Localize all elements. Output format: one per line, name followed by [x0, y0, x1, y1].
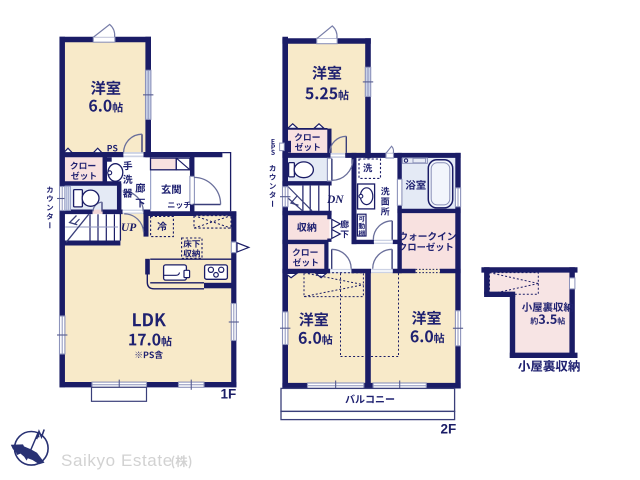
svg-text:Saikyo Estate: Saikyo Estate	[61, 451, 173, 470]
svg-text:DN: DN	[326, 194, 344, 206]
svg-text:1F: 1F	[221, 387, 237, 402]
svg-text:2F: 2F	[441, 422, 457, 437]
svg-text:UP: UP	[121, 222, 137, 234]
